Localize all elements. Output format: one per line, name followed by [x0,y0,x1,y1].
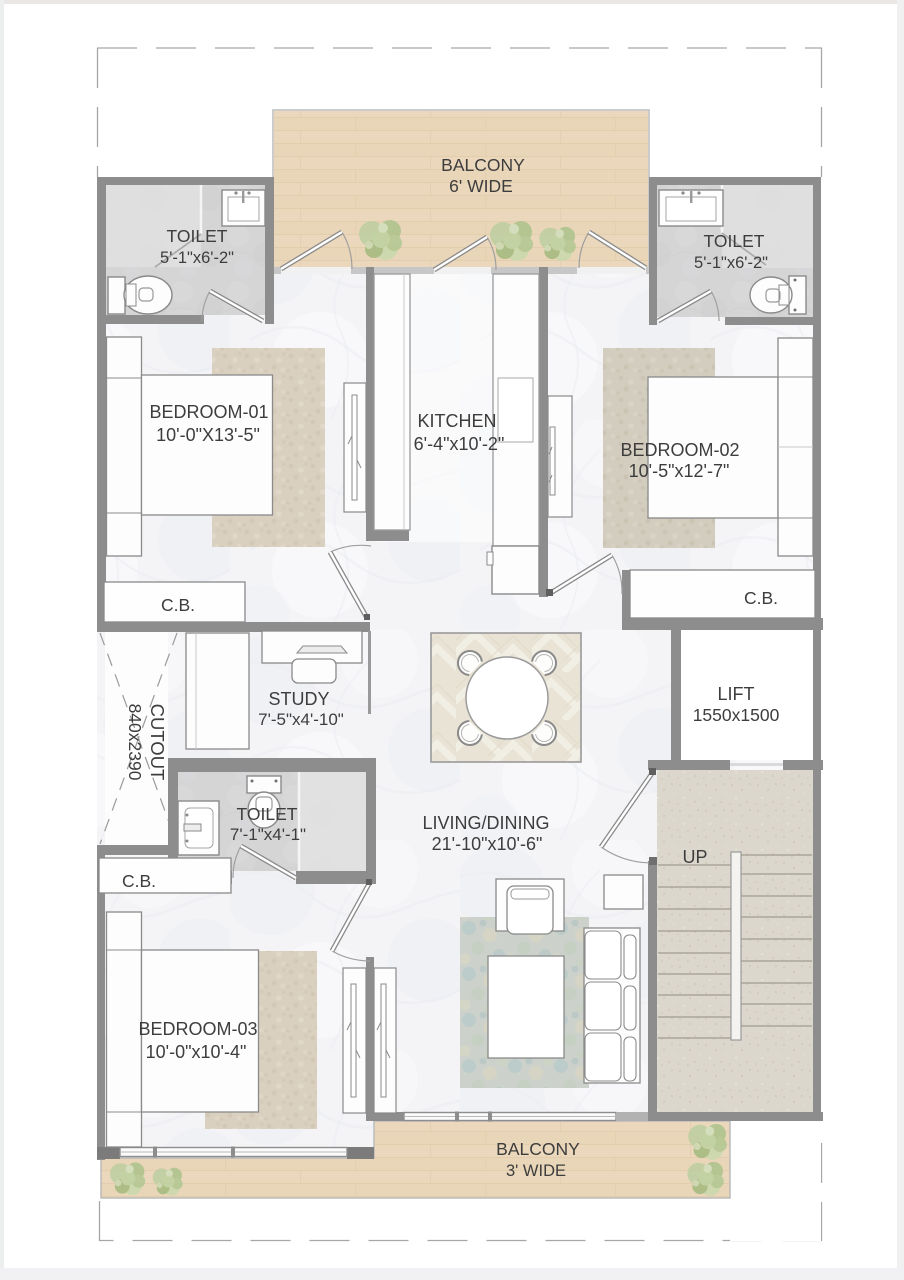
svg-text:BALCONY: BALCONY [441,155,525,175]
svg-text:10'-5"x12'-7": 10'-5"x12'-7" [629,461,730,481]
svg-text:C.B.: C.B. [744,588,778,608]
svg-text:TOILET: TOILET [167,226,228,246]
svg-text:840x2390: 840x2390 [125,704,145,781]
svg-text:TOILET: TOILET [704,231,765,251]
svg-text:1550x1500: 1550x1500 [693,705,780,725]
svg-text:LIFT: LIFT [717,684,754,704]
svg-text:5'-1"x6'-2": 5'-1"x6'-2" [694,254,768,272]
svg-text:5'-1"x6'-2": 5'-1"x6'-2" [160,249,234,267]
svg-text:21'-10"x10'-6": 21'-10"x10'-6" [432,834,543,854]
svg-text:7'-5"x4'-10": 7'-5"x4'-10" [258,710,344,729]
svg-text:BEDROOM-03: BEDROOM-03 [138,1019,257,1039]
svg-text:CUTOUT: CUTOUT [147,704,168,781]
svg-text:10'-0"X13'-5": 10'-0"X13'-5" [156,425,260,445]
svg-text:TOILET: TOILET [237,804,298,824]
svg-text:BEDROOM-01: BEDROOM-01 [149,402,268,422]
svg-text:6'-4"x10'-2": 6'-4"x10'-2" [414,434,505,454]
svg-text:BEDROOM-02: BEDROOM-02 [620,440,739,460]
svg-text:C.B.: C.B. [122,871,156,891]
svg-text:KITCHEN: KITCHEN [417,411,496,431]
svg-text:C.B.: C.B. [161,595,195,615]
svg-text:10'-0"x10'-4": 10'-0"x10'-4" [146,1042,247,1062]
svg-text:BALCONY: BALCONY [496,1139,580,1159]
svg-text:6' WIDE: 6' WIDE [449,176,513,196]
svg-text:STUDY: STUDY [268,689,329,709]
svg-text:LIVING/DINING: LIVING/DINING [422,813,549,833]
svg-text:UP: UP [682,847,707,867]
svg-text:3' WIDE: 3' WIDE [506,1162,566,1180]
svg-text:7'-1"x4'-1": 7'-1"x4'-1" [230,825,306,844]
